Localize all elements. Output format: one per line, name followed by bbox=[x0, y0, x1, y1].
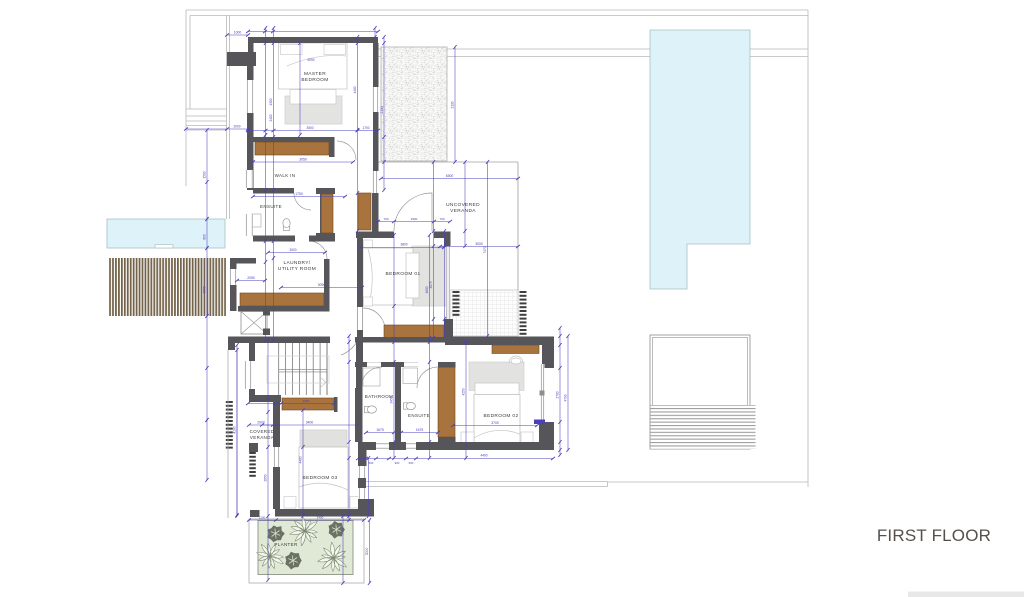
svg-text:700: 700 bbox=[383, 217, 388, 221]
svg-text:1200: 1200 bbox=[255, 399, 262, 403]
svg-text:2700: 2700 bbox=[556, 391, 560, 398]
svg-text:1000: 1000 bbox=[234, 31, 242, 35]
svg-text:400: 400 bbox=[547, 421, 552, 425]
svg-text:BEDROOM: BEDROOM bbox=[301, 77, 328, 83]
svg-text:4190: 4190 bbox=[233, 426, 237, 434]
svg-text:3700: 3700 bbox=[491, 421, 499, 425]
svg-text:500: 500 bbox=[369, 461, 374, 465]
svg-text:3000: 3000 bbox=[365, 548, 369, 556]
svg-text:2000: 2000 bbox=[233, 125, 240, 129]
svg-text:900: 900 bbox=[395, 461, 400, 465]
svg-text:UTILITY ROOM: UTILITY ROOM bbox=[278, 266, 316, 272]
svg-text:BEDROOM 03: BEDROOM 03 bbox=[303, 475, 338, 481]
svg-text:VERANDA: VERANDA bbox=[250, 435, 274, 440]
svg-text:2900: 2900 bbox=[411, 217, 418, 221]
svg-text:4790: 4790 bbox=[564, 394, 568, 401]
svg-text:MASTER: MASTER bbox=[304, 71, 326, 77]
svg-text:4490: 4490 bbox=[480, 454, 487, 458]
svg-text:WALK IN: WALK IN bbox=[275, 173, 296, 178]
svg-text:ENSUITE: ENSUITE bbox=[408, 413, 430, 418]
svg-text:FIRST FLOOR: FIRST FLOOR bbox=[877, 526, 991, 545]
svg-text:3000: 3000 bbox=[475, 242, 483, 246]
svg-text:BEDROOM 01: BEDROOM 01 bbox=[386, 271, 421, 277]
svg-text:3500: 3500 bbox=[306, 126, 313, 130]
svg-text:4300: 4300 bbox=[269, 98, 273, 105]
svg-text:3800: 3800 bbox=[400, 243, 407, 247]
svg-text:1050: 1050 bbox=[303, 399, 310, 403]
svg-text:PLANTER: PLANTER bbox=[274, 542, 298, 547]
svg-text:3050: 3050 bbox=[299, 158, 307, 162]
svg-text:6300: 6300 bbox=[446, 174, 454, 178]
svg-text:1750: 1750 bbox=[295, 192, 303, 196]
svg-text:700: 700 bbox=[439, 217, 444, 221]
svg-text:BEDROOM 02: BEDROOM 02 bbox=[484, 413, 519, 419]
svg-text:2400: 2400 bbox=[269, 114, 273, 121]
svg-text:2000: 2000 bbox=[257, 421, 265, 425]
svg-text:4400: 4400 bbox=[299, 456, 303, 463]
svg-text:2400: 2400 bbox=[317, 516, 324, 520]
svg-text:COVERED: COVERED bbox=[250, 429, 275, 434]
svg-text:1675: 1675 bbox=[376, 428, 384, 432]
svg-text:1675: 1675 bbox=[416, 428, 424, 432]
svg-text:2050: 2050 bbox=[247, 276, 255, 280]
svg-text:ENSUITE: ENSUITE bbox=[260, 204, 282, 209]
svg-text:4400: 4400 bbox=[353, 86, 357, 93]
svg-text:VERANDA: VERANDA bbox=[450, 208, 476, 214]
svg-text:LAUNDRY/: LAUNDRY/ bbox=[284, 260, 311, 266]
svg-text:7470: 7470 bbox=[483, 246, 487, 253]
svg-text:3090: 3090 bbox=[318, 283, 326, 287]
svg-text:1500: 1500 bbox=[203, 171, 207, 178]
svg-text:3000: 3000 bbox=[289, 248, 296, 252]
svg-text:4250: 4250 bbox=[462, 388, 466, 395]
svg-text:800: 800 bbox=[203, 234, 207, 240]
svg-text:3075: 3075 bbox=[429, 281, 433, 288]
svg-text:3400: 3400 bbox=[306, 421, 314, 425]
svg-text:500: 500 bbox=[409, 461, 414, 465]
svg-text:BATHROOM: BATHROOM bbox=[365, 394, 393, 399]
svg-text:2130: 2130 bbox=[451, 101, 455, 108]
svg-text:UNCOVERED: UNCOVERED bbox=[446, 202, 480, 208]
svg-text:2130: 2130 bbox=[380, 106, 384, 113]
svg-text:2650: 2650 bbox=[264, 474, 268, 481]
svg-text:1500: 1500 bbox=[203, 286, 207, 293]
svg-text:1200: 1200 bbox=[259, 516, 266, 520]
svg-text:1700: 1700 bbox=[362, 126, 369, 130]
svg-text:5090: 5090 bbox=[307, 58, 314, 62]
